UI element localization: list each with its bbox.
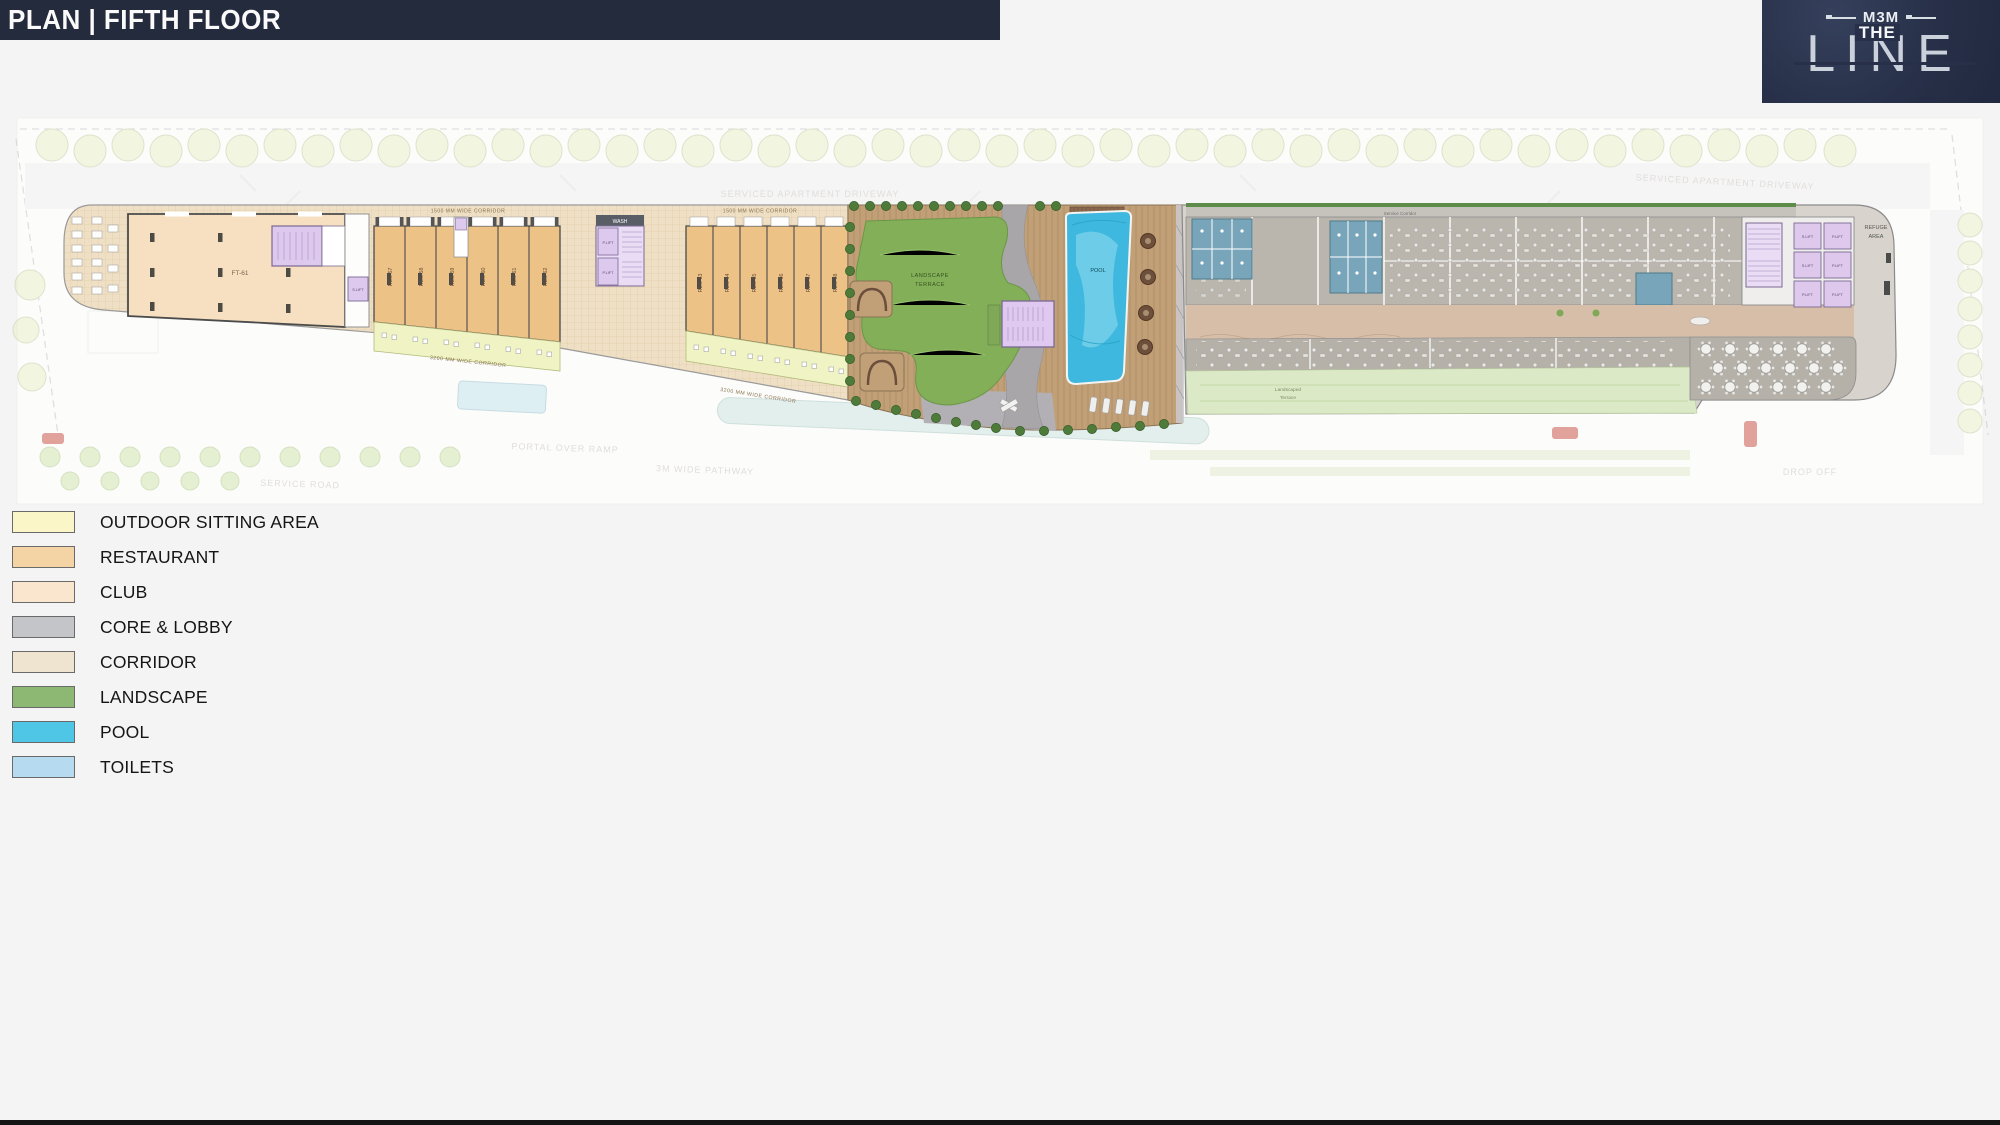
legend: OUTDOOR SITTING AREA RESTAURANT CLUB COR… (12, 511, 319, 791)
legend-label: CLUB (100, 582, 147, 603)
right-corridor (1186, 305, 1854, 339)
title-bar: PLAN | FIFTH FLOOR (0, 0, 1000, 40)
slide: PLAN | FIFTH FLOOR M3M LINE THE (0, 0, 2000, 1125)
right-lift-core: S.LIFT P.LIFT S.LIFT P.LIFT P.LIFT P.LIF… (1742, 217, 1854, 307)
restaurant-units-a: RES 57 RES 58 RES 59 RES 60 RES 61 RES 6… (374, 217, 560, 342)
toilets-block-1 (1192, 219, 1252, 279)
legend-label: POOL (100, 722, 149, 743)
site-pool (457, 381, 546, 414)
legend-label: CORRIDOR (100, 652, 197, 673)
legend-label: RESTAURANT (100, 547, 219, 568)
logo-wing-left-icon (1826, 17, 1856, 19)
legend-row: LANDSCAPE (12, 686, 319, 708)
page-title: PLAN | FIFTH FLOOR (8, 4, 281, 36)
legend-row: CLUB (12, 581, 319, 603)
legend-swatch-landscape (12, 686, 75, 708)
legend-row: RESTAURANT (12, 546, 319, 568)
legend-label: OUTDOOR SITTING AREA (100, 512, 319, 533)
hedge-line (1186, 203, 1796, 207)
legend-swatch-corridor (12, 651, 75, 673)
legend-swatch-club (12, 581, 75, 603)
legend-swatch-pool (12, 721, 75, 743)
legend-label: LANDSCAPE (100, 687, 208, 708)
legend-swatch-core-lobby (12, 616, 75, 638)
legend-label: TOILETS (100, 757, 174, 778)
wash-core: WASH P.LIFT P.LIFT (596, 215, 644, 286)
legend-swatch-restaurant (12, 546, 75, 568)
toilets-block-2 (1330, 221, 1382, 293)
banquet-area (1690, 337, 1856, 400)
brand-logo: M3M LINE THE (1762, 0, 2000, 103)
landscaped-terrace-strip: Landscaped Terrace (1186, 367, 1697, 414)
s-lift-core: S.LIFT (348, 277, 368, 301)
legend-row: POOL (12, 721, 319, 743)
logo-the-text: THE (1855, 24, 1900, 41)
pool: POOL (1066, 211, 1131, 384)
legend-row: CORE & LOBBY (12, 616, 319, 638)
legend-swatch-outdoor-sitting (12, 511, 75, 533)
legend-swatch-toilets (12, 756, 75, 778)
logo-wordmark: LINE THE (1800, 28, 1962, 80)
legend-row: OUTDOOR SITTING AREA (12, 511, 319, 533)
bottom-bar (0, 1120, 2000, 1125)
legend-row: TOILETS (12, 756, 319, 778)
landscape-terrace-section: LANDSCAPE TERRACE (845, 201, 1184, 435)
logo-stencil-cut (1794, 62, 1975, 65)
legend-label: CORE & LOBBY (100, 617, 233, 638)
toilets-block-3 (1636, 273, 1672, 305)
logo-wing-right-icon (1906, 17, 1936, 19)
floor-plan: SERVICED APARTMENT DRIVEWAY SERVICED APA… (0, 105, 2000, 505)
lobby-strip (345, 214, 369, 327)
building-right-section: Service Corridor (1182, 203, 1896, 414)
terrace-stair-core (988, 301, 1054, 347)
club-room: FT-61 (128, 212, 345, 328)
legend-row: CORRIDOR (12, 651, 319, 673)
club-stair-core (272, 226, 322, 266)
